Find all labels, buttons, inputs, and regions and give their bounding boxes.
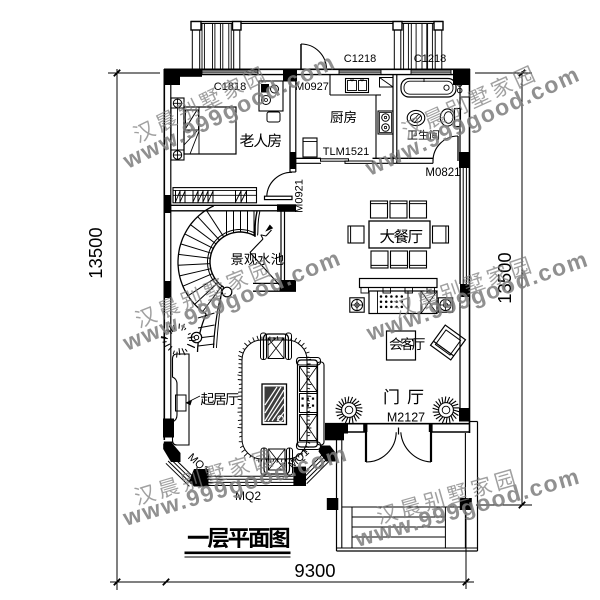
- svg-text:M0821: M0821: [425, 167, 460, 179]
- svg-text:M2127: M2127: [387, 411, 425, 425]
- svg-text:C1218: C1218: [414, 53, 446, 65]
- svg-text:13500: 13500: [85, 227, 106, 278]
- svg-text:M0921: M0921: [294, 179, 306, 213]
- svg-text:C1218: C1218: [344, 53, 376, 65]
- svg-text:9300: 9300: [294, 560, 335, 581]
